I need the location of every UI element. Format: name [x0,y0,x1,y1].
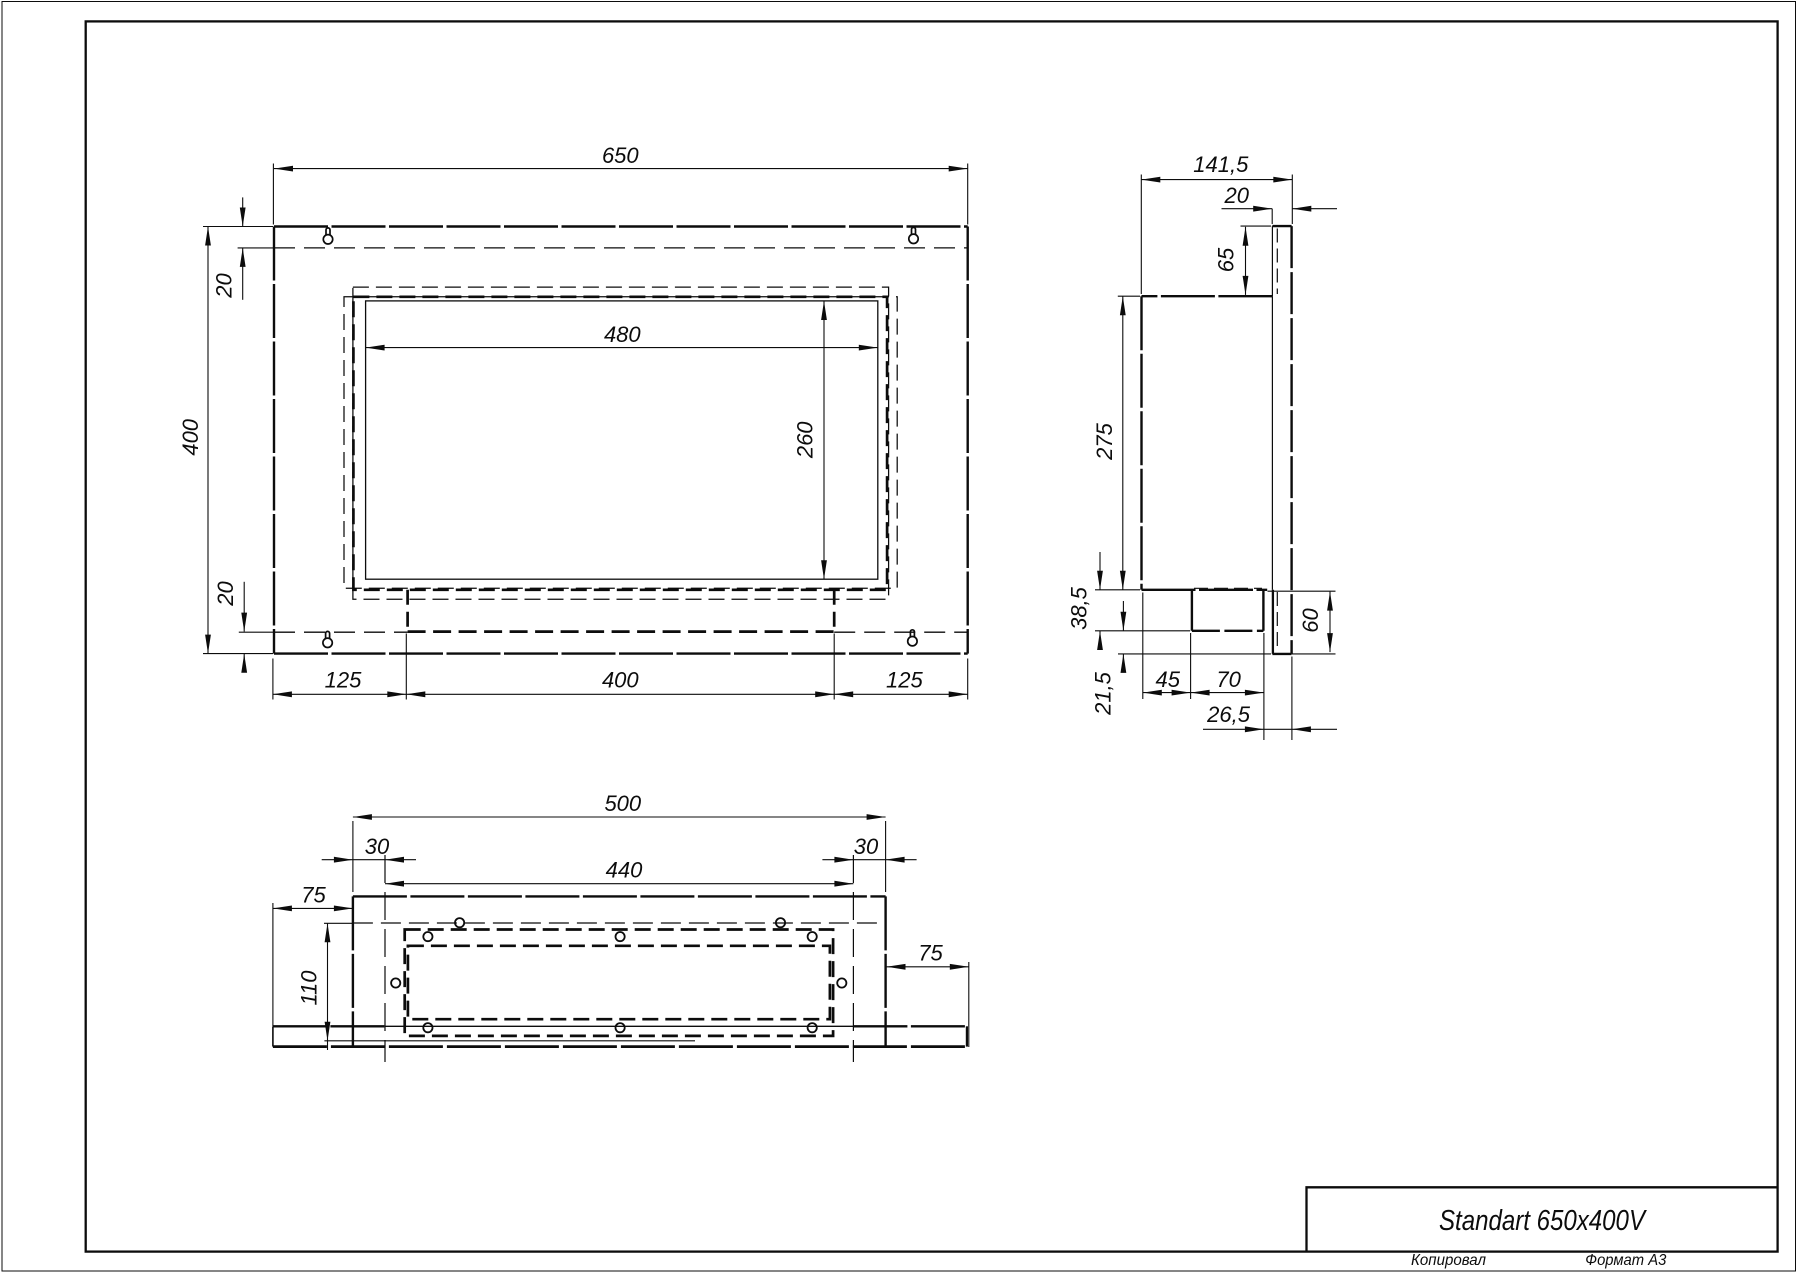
svg-text:Standart 650x400V: Standart 650x400V [1439,1205,1647,1237]
svg-text:60: 60 [1298,608,1323,633]
svg-text:500: 500 [604,791,641,816]
svg-text:70: 70 [1216,667,1241,692]
svg-text:26,5: 26,5 [1206,702,1251,727]
svg-text:480: 480 [604,322,641,347]
svg-text:110: 110 [297,970,322,1006]
svg-text:650: 650 [602,143,639,168]
svg-text:141,5: 141,5 [1193,152,1249,177]
svg-text:75: 75 [301,883,326,908]
svg-text:Формат А3: Формат А3 [1585,1252,1666,1269]
svg-text:65: 65 [1213,247,1238,272]
svg-text:20: 20 [213,581,238,607]
svg-text:125: 125 [886,668,923,693]
svg-text:38,5: 38,5 [1067,586,1092,630]
svg-text:30: 30 [365,834,390,859]
svg-text:440: 440 [606,858,643,883]
svg-text:45: 45 [1156,667,1181,692]
svg-text:260: 260 [793,421,818,459]
svg-text:21,5: 21,5 [1091,671,1116,716]
svg-text:Копировал: Копировал [1411,1252,1486,1269]
svg-text:125: 125 [325,668,362,693]
svg-text:20: 20 [212,273,237,299]
svg-text:400: 400 [602,668,639,693]
svg-text:20: 20 [1224,183,1250,208]
svg-text:400: 400 [178,418,203,455]
svg-text:75: 75 [918,941,943,966]
svg-text:30: 30 [854,834,879,859]
svg-text:275: 275 [1092,422,1117,460]
